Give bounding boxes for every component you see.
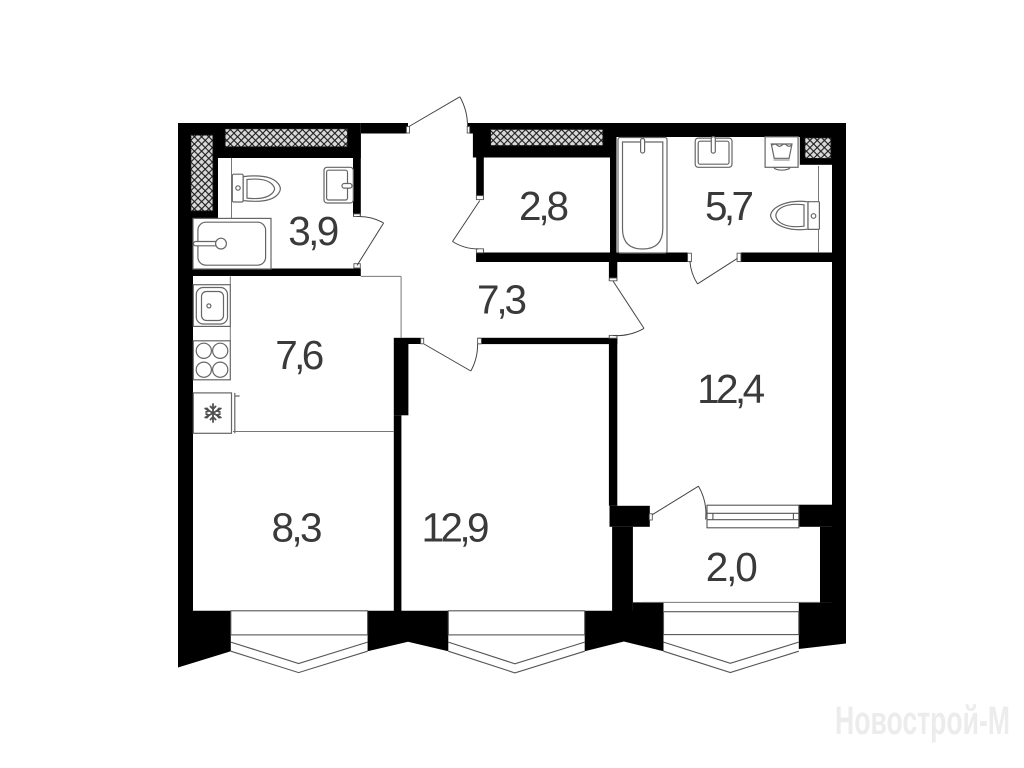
svg-text:12,4: 12,4 [697,366,765,412]
svg-text:3,9: 3,9 [288,208,339,254]
svg-text:12,9: 12,9 [422,505,490,551]
svg-text:5,7: 5,7 [705,183,754,229]
svg-text:Новострой-М: Новострой-М [835,699,1010,743]
svg-text:7,6: 7,6 [275,332,324,378]
svg-text:8,3: 8,3 [272,505,323,551]
svg-text:2,0: 2,0 [706,544,758,590]
svg-text:7,3: 7,3 [477,277,527,323]
svg-text:2,8: 2,8 [519,183,569,229]
